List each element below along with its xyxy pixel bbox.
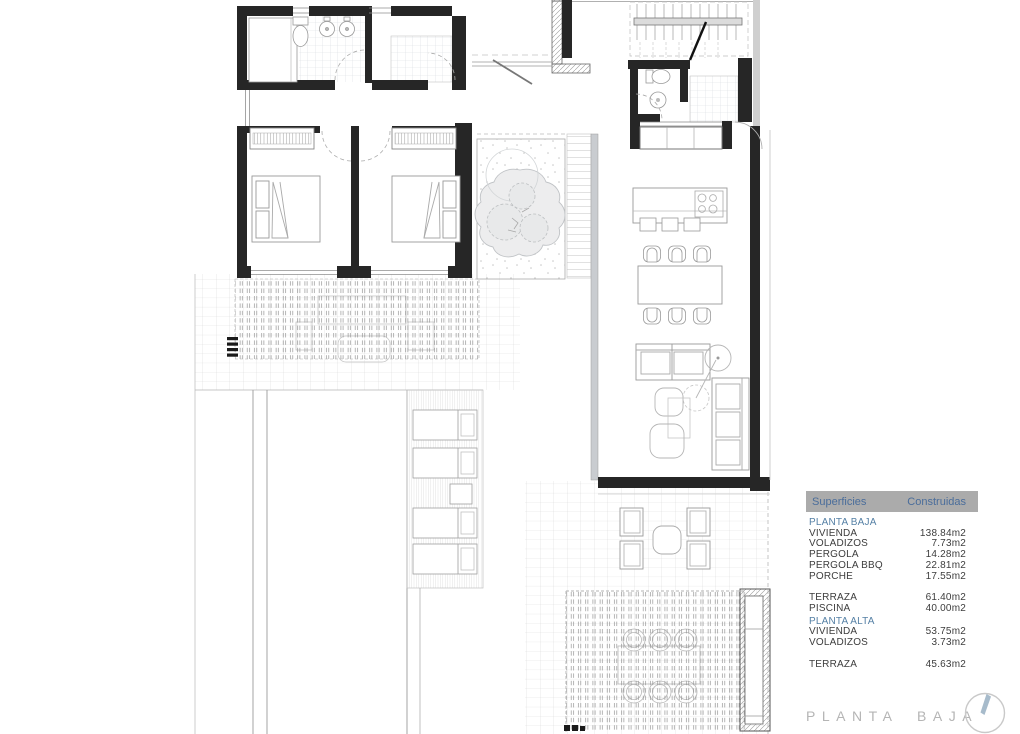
sun-lounger	[413, 544, 477, 574]
deck-loungers	[407, 390, 483, 734]
sofa-two-seat	[636, 344, 710, 380]
stool	[662, 218, 678, 231]
living-block	[598, 121, 770, 494]
shower-closet	[249, 18, 297, 82]
pool	[253, 390, 407, 734]
floor-plan-page: Superficies Construidas PLANTA BAJA VIVI…	[0, 0, 1020, 734]
coffee-table	[668, 398, 690, 438]
pergola-left	[227, 279, 479, 362]
surface-table-col-superficies: Superficies	[812, 496, 866, 508]
side-table	[450, 484, 472, 504]
open-door	[493, 60, 532, 84]
handrail	[634, 18, 742, 25]
legend-row: PISCINA40.00m2	[806, 604, 978, 615]
surface-table-col-construidas: Construidas	[907, 496, 966, 508]
legend-row: PERGOLA BBQ22.81m2	[806, 561, 978, 572]
stair-cut-line	[690, 22, 706, 60]
bedrooms-block	[237, 123, 472, 278]
door-arc	[361, 131, 390, 161]
coffee-table	[650, 424, 684, 458]
bed	[252, 176, 320, 242]
toilet	[293, 17, 308, 47]
pergola-bbq	[564, 589, 770, 732]
coffee-table	[655, 388, 683, 416]
deck-steps	[567, 134, 591, 278]
sun-lounger	[413, 508, 477, 538]
stool	[640, 218, 656, 231]
plan-title: PLANTA BAJA	[806, 708, 978, 724]
stool	[684, 218, 700, 231]
door-arc	[322, 131, 351, 161]
surface-table: Superficies Construidas PLANTA BAJA VIVI…	[806, 491, 978, 670]
surface-table-header: Superficies Construidas	[806, 491, 978, 512]
kitchen-island	[633, 188, 727, 231]
bathroom-block	[237, 6, 466, 127]
sofa-three-seat	[712, 378, 749, 470]
sun-lounger	[413, 410, 477, 440]
glass-wall	[591, 134, 598, 480]
legend-row: TERRAZA45.63m2	[806, 660, 978, 671]
entry-floor	[690, 76, 738, 122]
sun-lounger	[413, 448, 477, 478]
bbq-counter	[740, 589, 770, 731]
legend-row: PORCHE17.55m2	[806, 572, 978, 583]
bedroom-2	[392, 128, 460, 242]
north-compass-icon	[963, 691, 1007, 734]
lounge-area	[636, 344, 749, 470]
wc	[628, 60, 690, 122]
bed	[392, 176, 460, 242]
dining-table	[638, 266, 722, 304]
bedroom-1	[250, 128, 320, 242]
stairs	[630, 2, 748, 60]
dining-area	[638, 246, 722, 324]
kitchen-counter	[640, 127, 722, 149]
legend-row: VOLADIZOS3.73m2	[806, 638, 978, 649]
stairs-block	[472, 0, 760, 128]
outdoor-table	[653, 526, 681, 554]
